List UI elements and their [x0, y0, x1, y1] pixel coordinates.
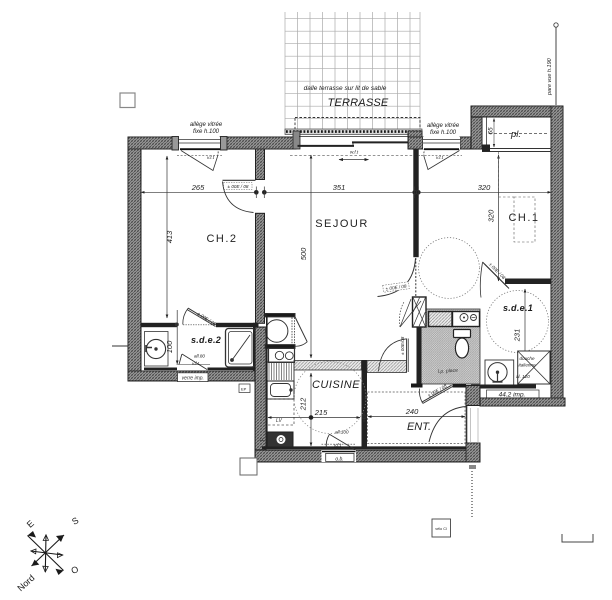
svg-text:EP: EP — [241, 387, 247, 392]
svg-text:fixe h.100: fixe h.100 — [430, 130, 457, 136]
svg-text:v.f.t: v.f.t — [436, 155, 444, 160]
svg-text:pare vue h.190: pare vue h.190 — [547, 57, 553, 96]
svg-text:LL: LL — [260, 437, 266, 442]
svg-text:v.f.t: v.f.t — [334, 443, 342, 448]
svg-text:CUISINE: CUISINE — [312, 379, 360, 391]
svg-text:320: 320 — [487, 209, 496, 222]
svg-text:w.f.t: w.f.t — [350, 150, 359, 155]
svg-text:fixe h.100: fixe h.100 — [193, 129, 220, 135]
svg-text:ENT.: ENT. — [407, 421, 431, 433]
svg-text:500: 500 — [299, 247, 308, 260]
svg-text:allège vitrée: allège vitrée — [190, 122, 223, 128]
svg-text:v.f.t: v.f.t — [192, 361, 200, 366]
svg-text:413: 413 — [165, 230, 174, 243]
svg-text:320: 320 — [478, 183, 491, 192]
svg-text:all.80: all.80 — [194, 354, 205, 359]
svg-text:CH.2: CH.2 — [206, 233, 237, 245]
svg-text:65: 65 — [488, 127, 495, 135]
svg-text:TERRASSE: TERRASSE — [328, 97, 389, 109]
svg-text:212: 212 — [299, 397, 308, 411]
svg-text:verre imp.: verre imp. — [182, 376, 204, 382]
svg-text:44.2 imp.: 44.2 imp. — [499, 392, 526, 399]
svg-text:SEJOUR: SEJOUR — [315, 218, 369, 230]
svg-text:vélo Cl: vélo Cl — [435, 527, 447, 531]
svg-text:± 00E / 08: ± 00E / 08 — [228, 184, 249, 189]
svg-text:dalle terrasse sur lit de sabl: dalle terrasse sur lit de sable — [304, 85, 387, 92]
svg-text:allège vitrée: allège vitrée — [427, 123, 460, 129]
svg-text:100: 100 — [165, 340, 174, 353]
svg-text:231: 231 — [513, 329, 522, 343]
svg-text:italienne: italienne — [518, 363, 536, 368]
svg-text:s.d.e.2: s.d.e.2 — [191, 335, 221, 345]
svg-text:v.f.t: v.f.t — [207, 155, 215, 160]
svg-text:al. 120: al. 120 — [516, 374, 530, 379]
svg-text:o.b.: o.b. — [335, 456, 343, 462]
svg-text:pl.: pl. — [510, 129, 521, 140]
svg-text:± 00E/08: ± 00E/08 — [400, 336, 405, 355]
svg-text:351: 351 — [333, 183, 346, 192]
svg-text:LV: LV — [276, 418, 283, 424]
svg-text:s.d.e.1: s.d.e.1 — [503, 303, 533, 313]
svg-text:all.100: all.100 — [335, 430, 349, 435]
svg-text:215: 215 — [314, 408, 328, 417]
svg-text:douche: douche — [519, 356, 535, 361]
svg-text:265: 265 — [191, 183, 205, 192]
svg-text:240: 240 — [405, 407, 419, 416]
